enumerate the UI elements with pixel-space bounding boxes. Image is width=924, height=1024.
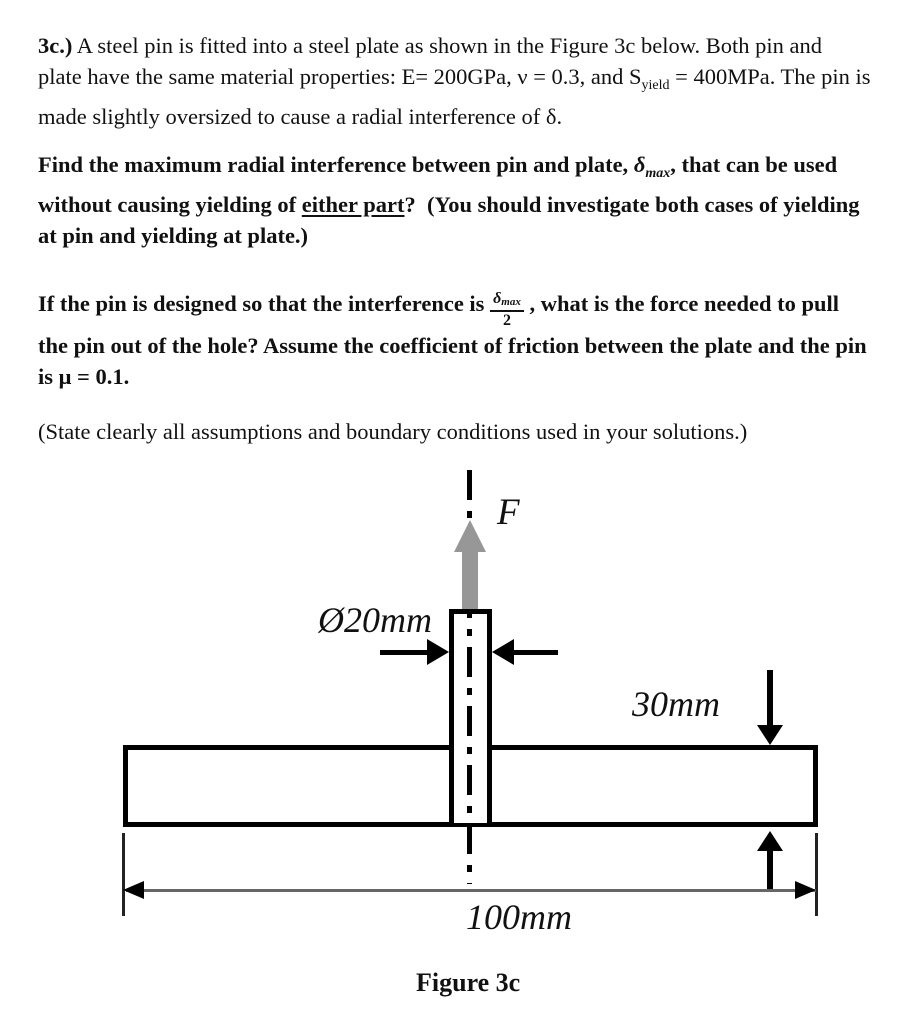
- width-arrow-left-icon: [123, 881, 144, 899]
- thickness-arrow-up-icon: [757, 831, 783, 851]
- force-arrow-head-icon: [454, 520, 486, 552]
- extension-line-left: [122, 833, 125, 916]
- diameter-arrow-left-icon: [492, 639, 514, 665]
- document-page: 3c.) A steel pin is fitted into a steel …: [0, 0, 924, 1024]
- force-label: F: [497, 494, 520, 531]
- width-arrow-right-icon: [795, 881, 816, 899]
- thickness-arrow-down-shaft: [767, 670, 773, 727]
- plate-width-label: 100mm: [466, 899, 572, 935]
- figure-3c: F Ø20mm 30mm 100mm Figure 3c: [0, 0, 924, 1024]
- thickness-arrow-up-shaft: [767, 849, 773, 891]
- diameter-dim-line-left: [380, 650, 432, 655]
- plate-thickness-label: 30mm: [632, 686, 720, 722]
- thickness-arrow-down-icon: [757, 725, 783, 745]
- extension-line-right: [815, 833, 818, 916]
- pin-diameter-label: Ø20mm: [318, 602, 432, 638]
- force-arrow-shaft: [462, 550, 478, 609]
- diameter-arrow-right-icon: [427, 639, 449, 665]
- width-dim-line: [126, 889, 816, 892]
- figure-caption: Figure 3c: [416, 970, 520, 996]
- diameter-dim-line-right: [510, 650, 558, 655]
